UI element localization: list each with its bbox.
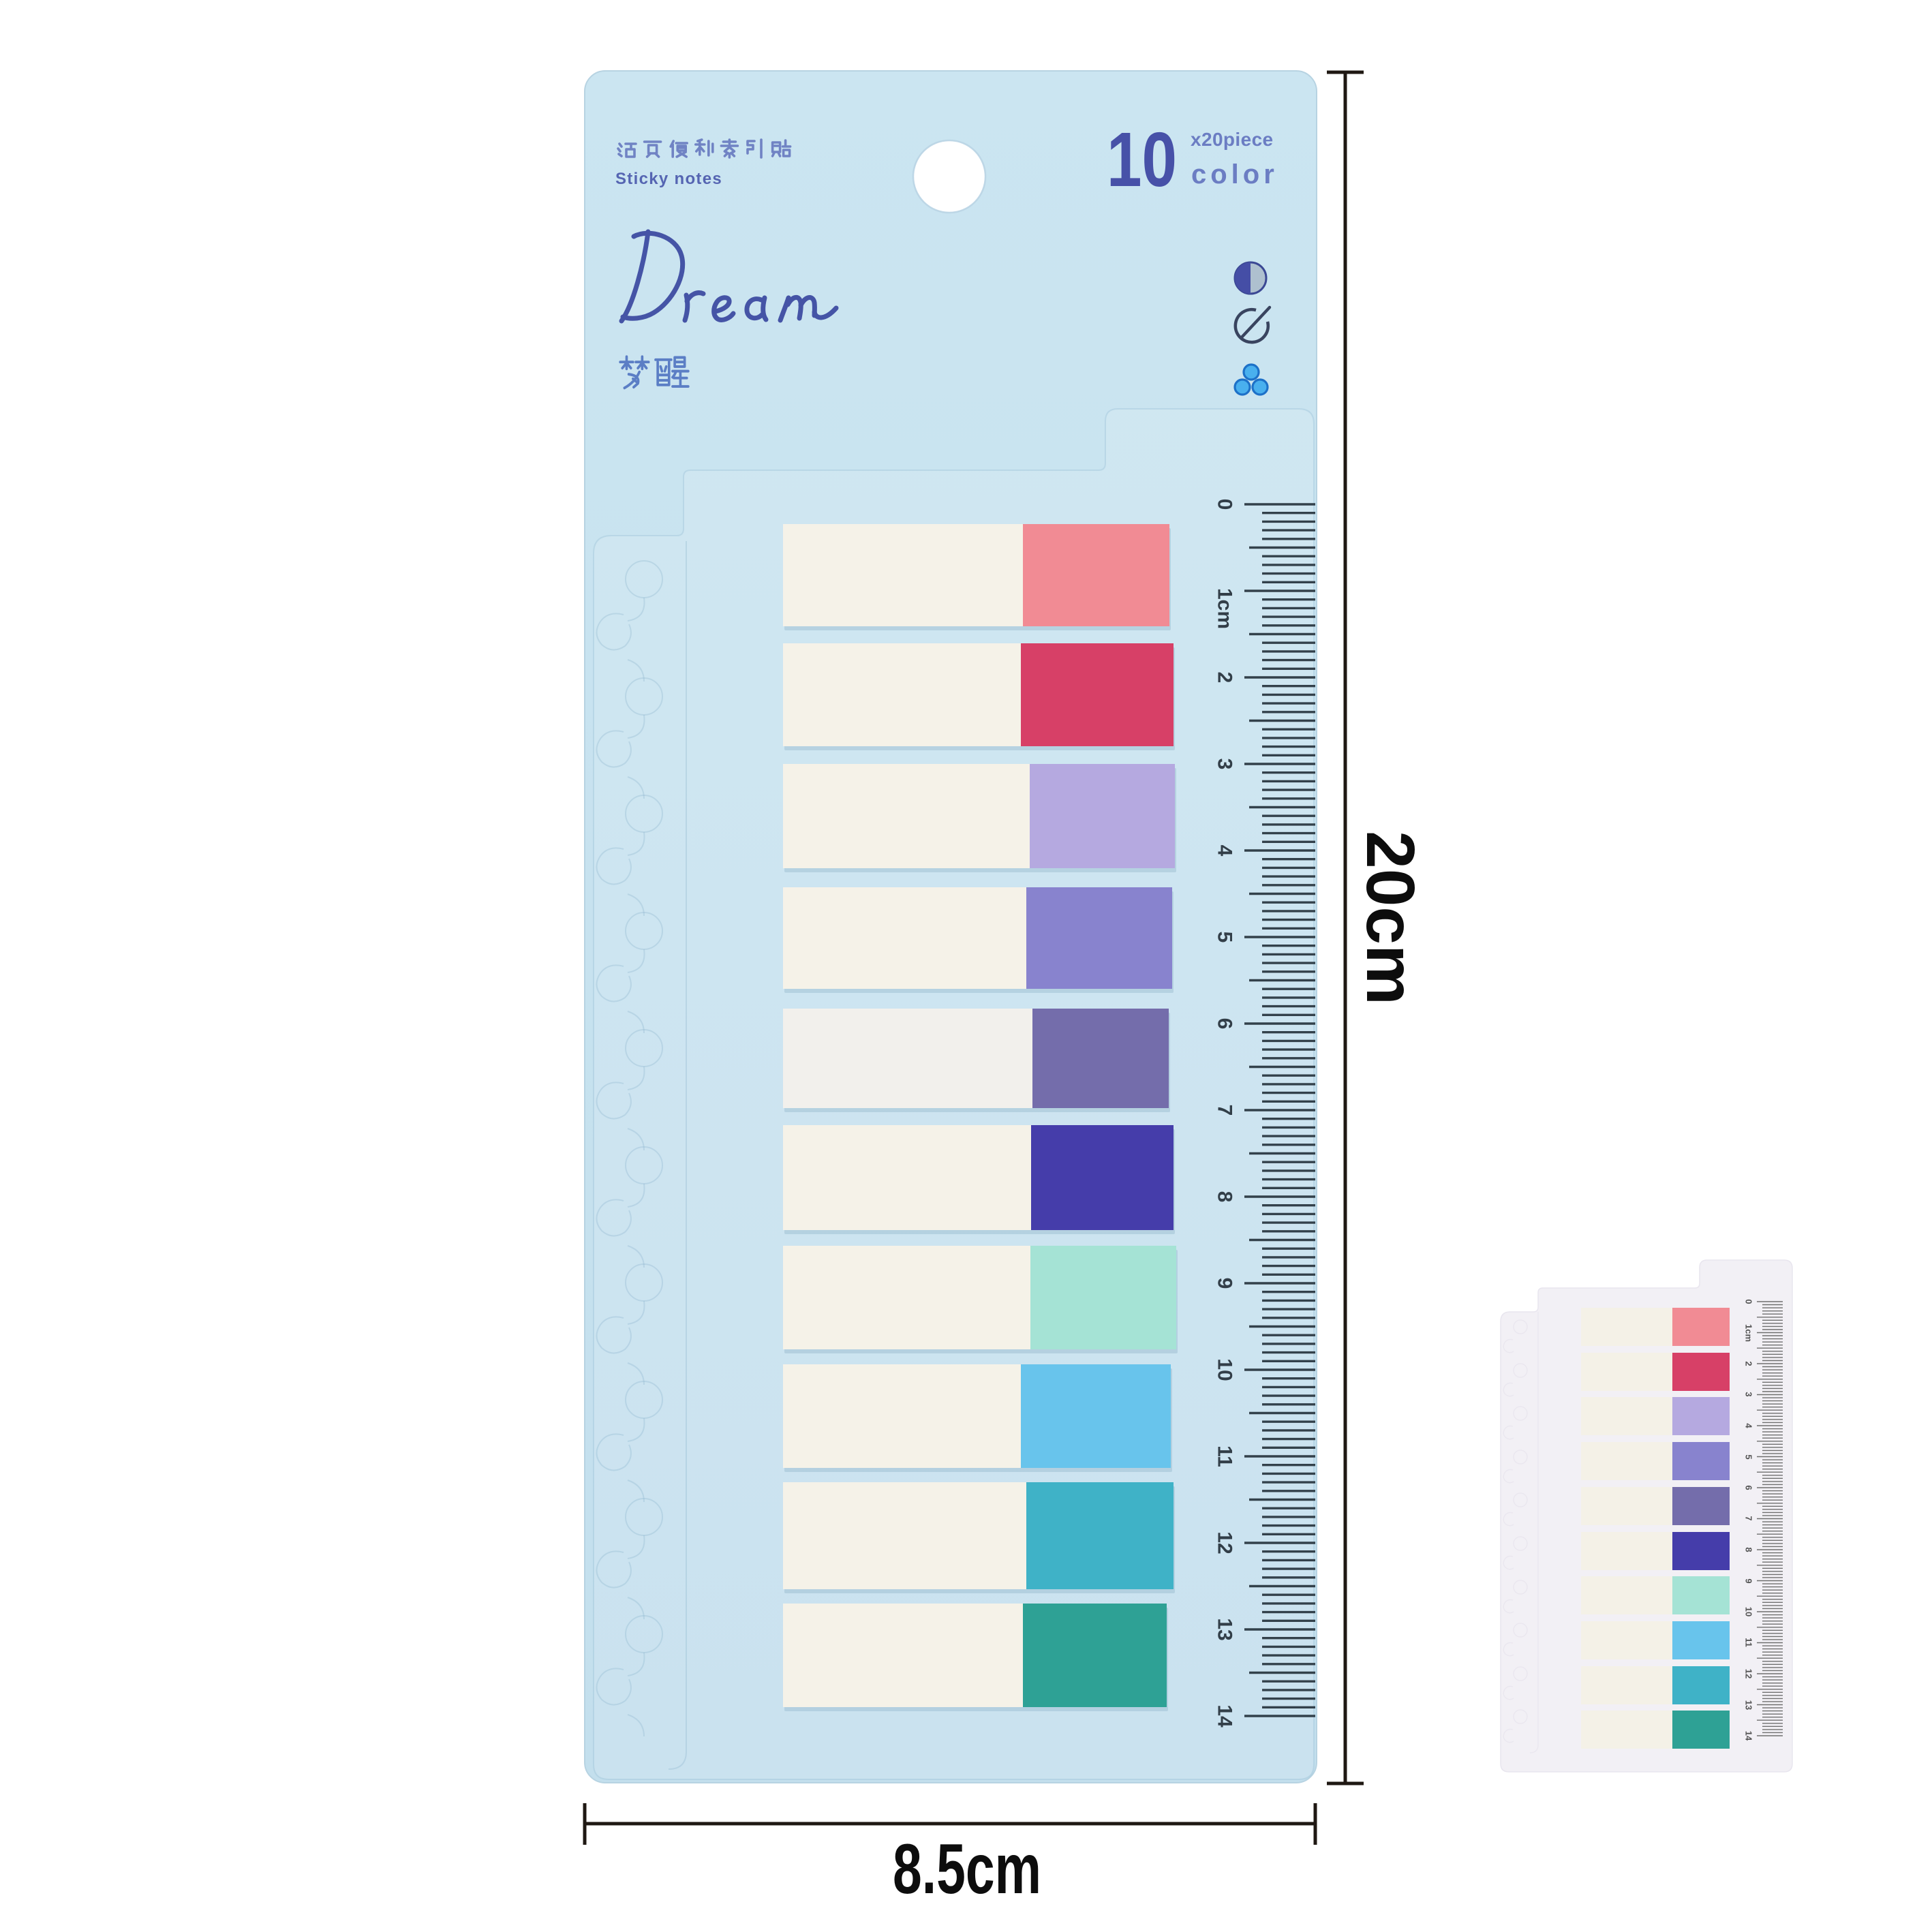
svg-text:6: 6	[1744, 1485, 1754, 1490]
svg-text:8: 8	[1744, 1547, 1754, 1552]
svg-text:14: 14	[1214, 1704, 1236, 1728]
svg-text:0: 0	[1744, 1299, 1754, 1304]
svg-text:20cm: 20cm	[1352, 831, 1428, 1005]
svg-text:color: color	[1191, 159, 1278, 189]
svg-text:2: 2	[1214, 672, 1236, 684]
svg-text:4: 4	[1214, 845, 1236, 857]
svg-text:9: 9	[1744, 1578, 1754, 1583]
svg-text:0: 0	[1214, 499, 1236, 510]
svg-text:7: 7	[1214, 1105, 1236, 1116]
svg-text:13: 13	[1214, 1618, 1236, 1640]
svg-text:4: 4	[1744, 1423, 1754, 1428]
svg-text:7: 7	[1744, 1516, 1754, 1520]
svg-text:Sticky notes: Sticky notes	[615, 170, 722, 188]
svg-text:8: 8	[1214, 1191, 1236, 1203]
svg-text:8.5cm: 8.5cm	[893, 1830, 1041, 1909]
svg-text:6: 6	[1214, 1018, 1236, 1030]
svg-text:11: 11	[1744, 1638, 1754, 1647]
svg-text:14: 14	[1744, 1731, 1754, 1741]
svg-text:3: 3	[1744, 1392, 1754, 1396]
svg-text:2: 2	[1744, 1361, 1754, 1366]
svg-text:3: 3	[1214, 758, 1236, 770]
svg-text:5: 5	[1214, 932, 1236, 943]
svg-text:12: 12	[1214, 1531, 1236, 1554]
svg-text:10: 10	[1214, 1358, 1236, 1381]
svg-text:10: 10	[1744, 1607, 1754, 1616]
svg-text:13: 13	[1744, 1700, 1754, 1710]
svg-text:10: 10	[1107, 117, 1177, 202]
svg-text:12: 12	[1744, 1669, 1754, 1678]
svg-text:9: 9	[1214, 1278, 1236, 1289]
svg-text:11: 11	[1214, 1445, 1236, 1467]
svg-text:1cm: 1cm	[1744, 1324, 1754, 1342]
svg-text:5: 5	[1744, 1454, 1754, 1459]
svg-text:x20piece: x20piece	[1191, 129, 1274, 150]
svg-text:1cm: 1cm	[1214, 588, 1236, 629]
